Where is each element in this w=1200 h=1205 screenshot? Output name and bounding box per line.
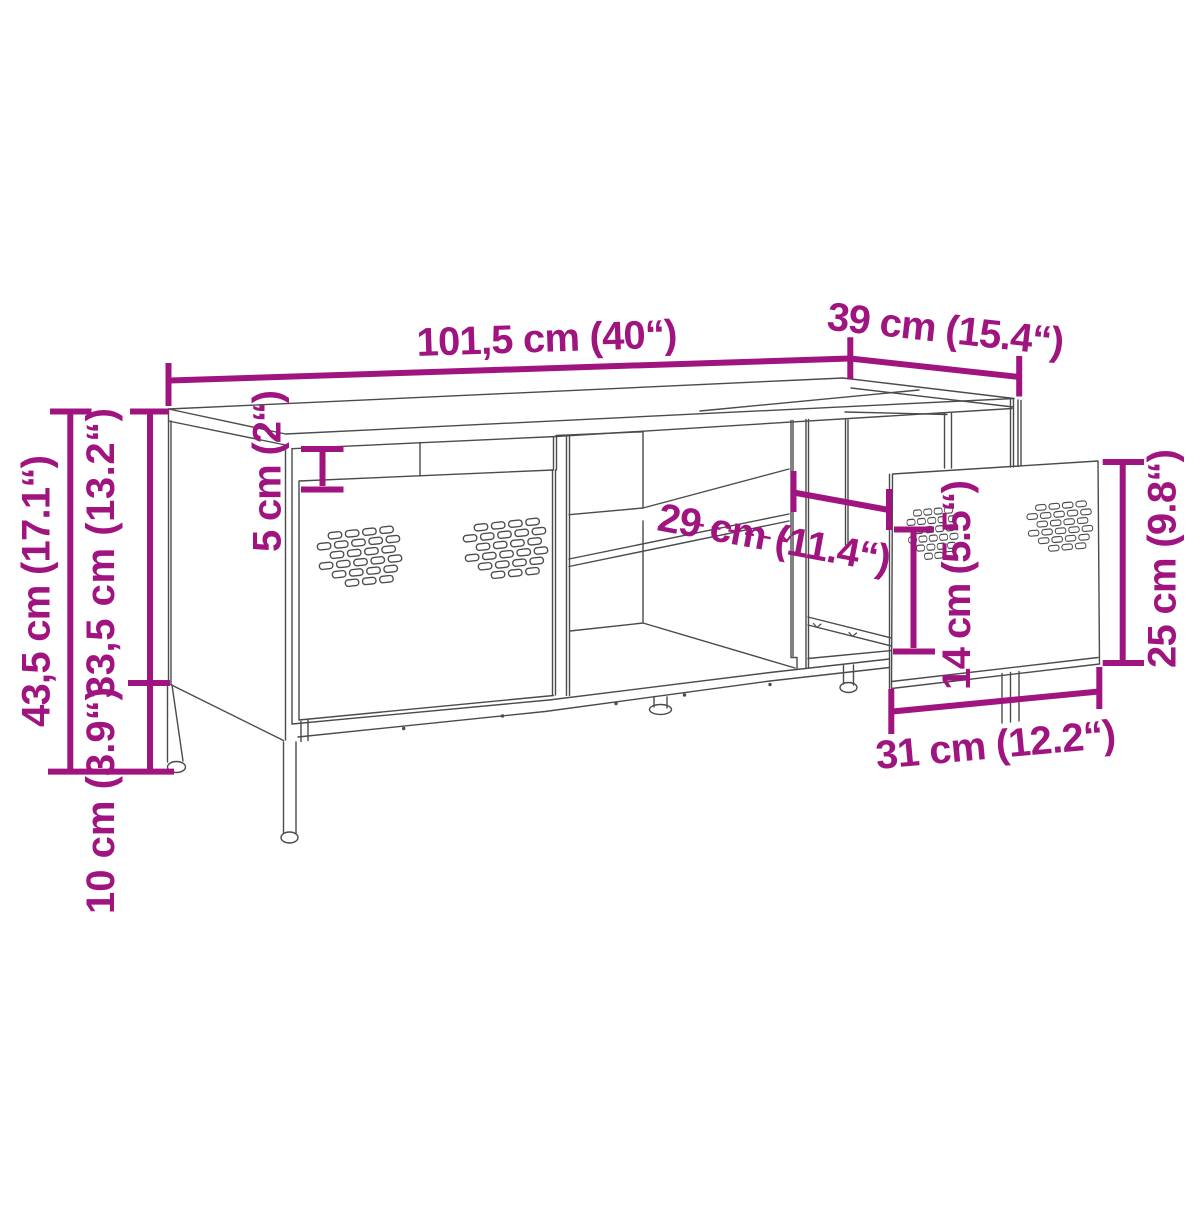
svg-text:101,5 cm (40“): 101,5 cm (40“) [416, 312, 678, 365]
svg-text:43,5 cm (17.1“): 43,5 cm (17.1“) [15, 455, 59, 727]
svg-text:33,5 cm (13.2“): 33,5 cm (13.2“) [79, 408, 123, 698]
svg-text:25 cm (9.8“): 25 cm (9.8“) [1141, 449, 1185, 668]
svg-text:10 cm (3.9“): 10 cm (3.9“) [79, 687, 123, 914]
svg-text:14 cm (5.5“): 14 cm (5.5“) [935, 480, 979, 690]
svg-text:5 cm (2“): 5 cm (2“) [246, 390, 290, 552]
